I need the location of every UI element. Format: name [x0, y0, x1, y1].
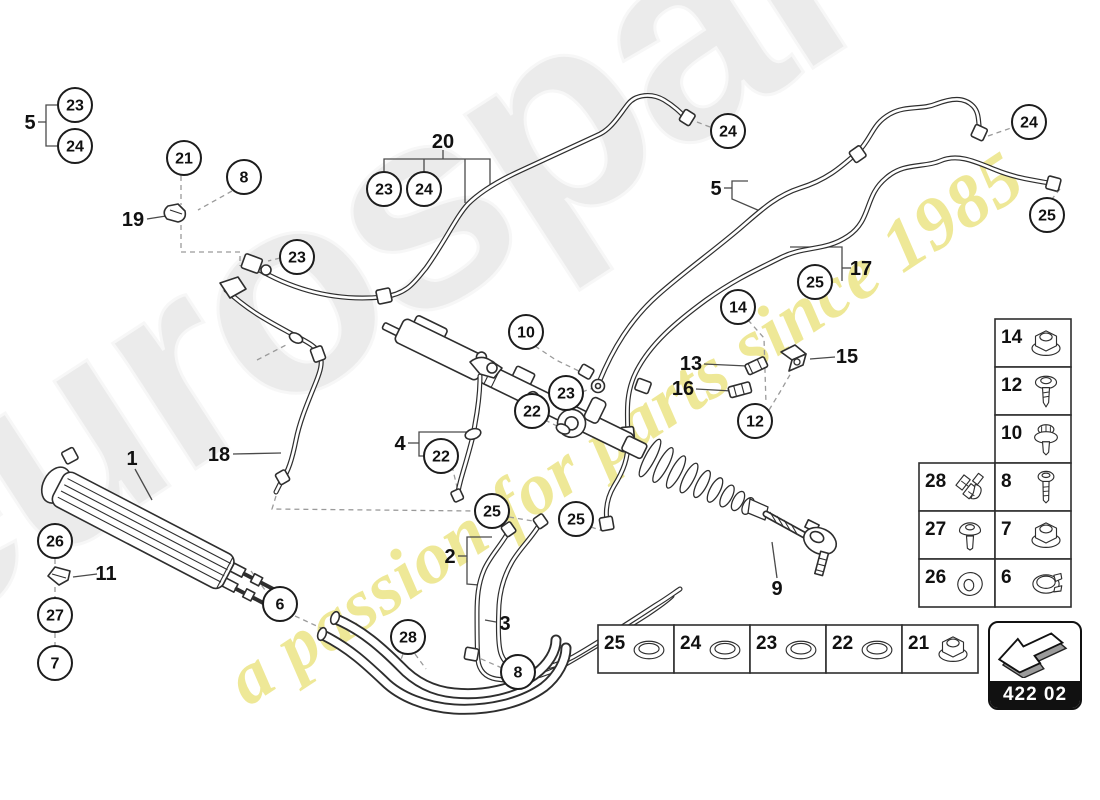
callout-8[interactable]: 8 — [227, 160, 261, 194]
callout-24[interactable]: 24 — [407, 172, 441, 206]
oring-icon — [862, 641, 892, 659]
callout-14[interactable]: 14 — [721, 290, 755, 324]
callout-number: 14 — [729, 300, 747, 317]
callout-number: 8 — [514, 665, 523, 682]
fastener_table-cell-26[interactable]: 26 — [919, 559, 995, 607]
label-9: 9 — [771, 578, 782, 600]
label-5: 5 — [710, 178, 721, 200]
tie-rod-end — [766, 512, 841, 576]
oring-icon — [710, 641, 740, 659]
label-17: 17 — [850, 258, 872, 280]
callout-number: 23 — [288, 250, 306, 267]
callout-number: 28 — [399, 630, 417, 647]
fastener_table-cell-6[interactable]: 6 — [995, 559, 1071, 607]
callout-25[interactable]: 25 — [1030, 198, 1064, 232]
callout-24[interactable]: 24 — [1012, 105, 1046, 139]
rack-boot — [636, 437, 768, 520]
callout-number: 24 — [1020, 115, 1038, 132]
clamp-19 — [164, 204, 185, 222]
callout-number: 22 — [432, 449, 450, 466]
table-cell-number: 23 — [756, 633, 777, 654]
callout-24[interactable]: 24 — [58, 129, 92, 163]
callout-number: 24 — [66, 139, 84, 156]
callout-27[interactable]: 27 — [38, 598, 72, 632]
label-13: 13 — [680, 353, 702, 375]
label-4: 4 — [394, 433, 406, 455]
label-11: 11 — [95, 563, 116, 585]
table-cell-number: 12 — [1001, 375, 1022, 396]
callout-number: 21 — [175, 151, 193, 168]
label-1: 1 — [126, 448, 137, 470]
callout-23[interactable]: 23 — [280, 240, 314, 274]
callout-10[interactable]: 10 — [509, 315, 543, 349]
callout-25[interactable]: 25 — [475, 494, 509, 528]
fastener_table-cell-27[interactable]: 27 — [919, 511, 995, 559]
fastener_table-cell-12[interactable]: 12 — [995, 367, 1071, 415]
callout-21[interactable]: 21 — [167, 141, 201, 175]
hose-18 — [220, 277, 326, 492]
callout-22[interactable]: 22 — [424, 439, 458, 473]
callout-number: 8 — [240, 170, 249, 187]
part-group-badge[interactable]: 422 02 — [988, 621, 1082, 710]
callout-number: 25 — [483, 504, 501, 521]
callout-23[interactable]: 23 — [367, 172, 401, 206]
arrow-icon — [990, 623, 1080, 681]
fastener_table-cell-10[interactable]: 10 — [995, 415, 1071, 463]
callout-25[interactable]: 25 — [559, 502, 593, 536]
seal_table-cell-24[interactable]: 24 — [674, 625, 750, 673]
table-cell-number: 22 — [832, 633, 853, 654]
oring-icon — [786, 641, 816, 659]
callout-number: 23 — [66, 98, 84, 115]
fastener_table-cell-8[interactable]: 8 — [995, 463, 1071, 511]
callout-23[interactable]: 23 — [549, 376, 583, 410]
label-19: 19 — [122, 209, 144, 231]
table-cell-number: 14 — [1001, 327, 1023, 348]
callout-number: 7 — [51, 656, 60, 673]
callout-6[interactable]: 6 — [263, 587, 297, 621]
callout-12[interactable]: 12 — [738, 404, 772, 438]
callout-28[interactable]: 28 — [391, 620, 425, 654]
callout-number: 23 — [557, 386, 575, 403]
table-cell-number: 28 — [925, 471, 946, 492]
callout-number: 12 — [746, 414, 764, 431]
pipe-5-end-fitting — [971, 124, 988, 141]
callout-number: 24 — [719, 124, 737, 141]
seal_table-cell-25[interactable]: 25 — [598, 625, 674, 673]
seal_table-cell-22[interactable]: 22 — [826, 625, 902, 673]
label-5: 5 — [24, 112, 35, 134]
callout-number: 26 — [46, 534, 64, 551]
callout-number: 23 — [375, 182, 393, 199]
table-cell-number: 8 — [1001, 471, 1012, 492]
table-cell-number: 10 — [1001, 423, 1022, 444]
callout-number: 25 — [806, 275, 824, 292]
callout-number: 10 — [517, 325, 535, 342]
bracket-15 — [781, 345, 806, 371]
table-cell-number: 7 — [1001, 519, 1012, 540]
table-cell-number: 25 — [604, 633, 626, 654]
part-group-code: 422 02 — [990, 681, 1080, 708]
callout-26[interactable]: 26 — [38, 524, 72, 558]
label-3: 3 — [499, 613, 510, 635]
callout-7[interactable]: 7 — [38, 646, 72, 680]
callout-number: 27 — [46, 608, 64, 625]
label-20: 20 — [432, 131, 454, 153]
label-15: 15 — [836, 346, 858, 368]
fastener_table-cell-7[interactable]: 7 — [995, 511, 1071, 559]
table-cell-number: 21 — [908, 633, 930, 654]
table-cell-number: 24 — [680, 633, 702, 654]
callout-number: 6 — [276, 597, 285, 614]
pipe-17-end-fitting — [1045, 176, 1061, 192]
label-2: 2 — [444, 546, 455, 568]
table-cell-number: 6 — [1001, 567, 1012, 588]
callout-25[interactable]: 25 — [798, 265, 832, 299]
callout-number: 22 — [523, 404, 541, 421]
table-cell-number: 27 — [925, 519, 946, 540]
bracket-16 — [728, 382, 752, 398]
callout-number: 25 — [1038, 208, 1056, 225]
label-16: 16 — [672, 378, 694, 400]
callout-22[interactable]: 22 — [515, 394, 549, 428]
power-steering-diagram: 1412102882772662524232221 51920517151316… — [0, 0, 1100, 800]
callout-23[interactable]: 23 — [58, 88, 92, 122]
table-cell-number: 26 — [925, 567, 946, 588]
seal_table-cell-23[interactable]: 23 — [750, 625, 826, 673]
seal_table-cell-21[interactable]: 21 — [902, 625, 978, 673]
cooler-clip-11 — [48, 567, 70, 585]
callout-number: 24 — [415, 182, 433, 199]
callout-8[interactable]: 8 — [501, 655, 535, 689]
parts-diagram-page: eurospares a passion for parts since 198… — [0, 0, 1100, 800]
callout-24[interactable]: 24 — [711, 114, 745, 148]
fastener_table-cell-28[interactable]: 28 — [919, 463, 995, 511]
callout-number: 25 — [567, 512, 585, 529]
label-18: 18 — [208, 444, 230, 466]
fastener_table-cell-14[interactable]: 14 — [995, 319, 1071, 367]
oring-icon — [634, 641, 664, 659]
